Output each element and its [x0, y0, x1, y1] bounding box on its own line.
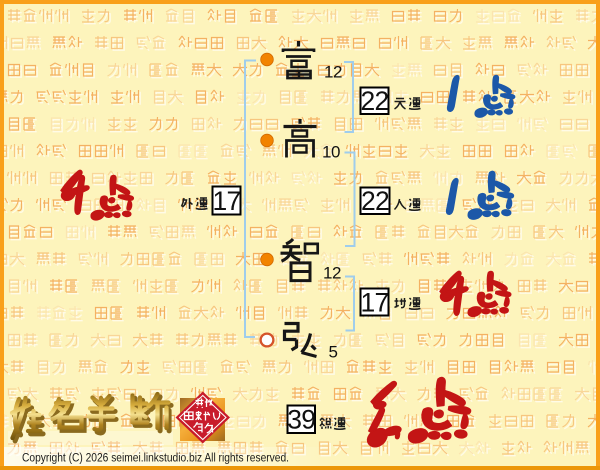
svg-text:22: 22 [361, 86, 389, 116]
svg-text:Copyright (C) 2026 seimei.link: Copyright (C) 2026 seimei.linkstudio.biz… [22, 451, 289, 465]
svg-text:12: 12 [324, 63, 342, 82]
svg-text:17: 17 [213, 186, 241, 216]
svg-text:10: 10 [322, 143, 340, 162]
svg-text:12: 12 [323, 264, 341, 283]
svg-text:39: 39 [287, 405, 315, 435]
svg-text:5: 5 [329, 343, 338, 362]
svg-text:22: 22 [361, 186, 389, 216]
svg-text:17: 17 [361, 287, 389, 317]
